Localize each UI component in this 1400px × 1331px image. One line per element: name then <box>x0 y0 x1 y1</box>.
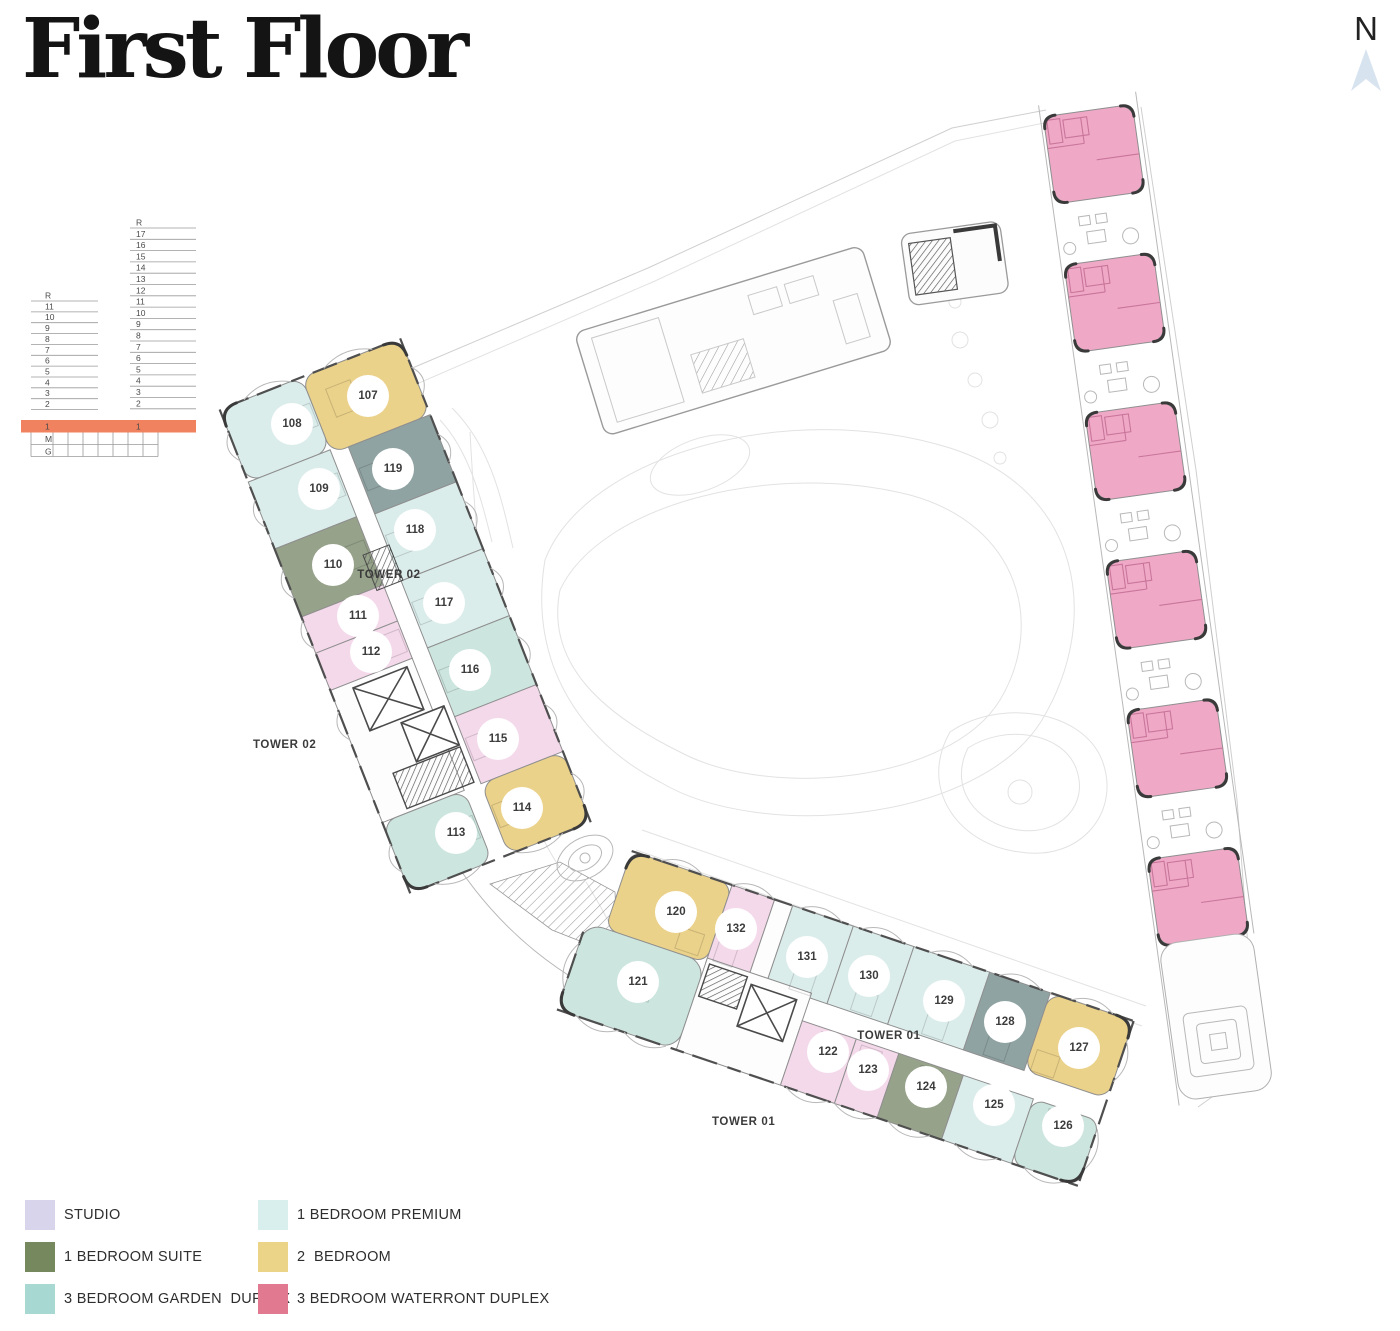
waterfront-unit <box>1127 698 1228 798</box>
unit-badge: 122 <box>807 1031 849 1073</box>
tower02-inner-label: TOWER 02 <box>357 569 420 581</box>
suite-swatch-icon <box>25 1242 55 1272</box>
floor-plan: 107 108 119 109 118 110 117 111 112 116 … <box>0 0 1400 1331</box>
legend-label: 1 BEDROOM SUITE <box>64 1249 202 1265</box>
waterfront-unit <box>1043 104 1144 204</box>
svg-text:108: 108 <box>282 418 302 430</box>
svg-text:111: 111 <box>349 610 368 622</box>
svg-text:112: 112 <box>362 646 381 658</box>
svg-text:116: 116 <box>461 664 480 676</box>
svg-text:110: 110 <box>324 559 343 571</box>
unit-badge: 116 <box>449 649 491 691</box>
legend-label: 1 BEDROOM PREMIUM <box>297 1207 462 1223</box>
unit-badge: 127 <box>1058 1027 1100 1069</box>
unit-badge: 113 <box>435 812 477 854</box>
svg-text:109: 109 <box>309 483 328 495</box>
svg-text:127: 127 <box>1069 1042 1088 1054</box>
unit-badge: 130 <box>848 955 890 997</box>
svg-text:123: 123 <box>858 1064 877 1076</box>
legend: STUDIO 1 BEDROOM SUITE 3 BEDROOM GARDEN … <box>0 1188 760 1328</box>
unit-badge: 112 <box>350 631 392 673</box>
legend-label: 3 BEDROOM WATERRONT DUPLEX <box>297 1291 549 1307</box>
unit-badge: 121 <box>617 961 659 1003</box>
svg-text:114: 114 <box>513 802 532 814</box>
waterfront-duplex-swatch-icon <box>258 1284 288 1314</box>
amenity-annex <box>900 221 1009 306</box>
tower02-outer-label: TOWER 02 <box>253 739 316 751</box>
unit-badge: 126 <box>1042 1105 1084 1147</box>
svg-text:107: 107 <box>358 390 377 402</box>
unit-badge: 128 <box>984 1001 1026 1043</box>
unit-badge: 123 <box>847 1049 889 1091</box>
svg-text:122: 122 <box>818 1046 837 1058</box>
legend-item-2-bedroom: 2 BEDROOM <box>258 1242 391 1272</box>
premium-swatch-icon <box>258 1200 288 1230</box>
legend-item-3br-garden-duplex: 3 BEDROOM GARDEN DUPLEX <box>25 1284 290 1314</box>
studio-swatch-icon <box>25 1200 55 1230</box>
unit-badge: 111 <box>337 595 379 637</box>
legend-label: STUDIO <box>64 1207 121 1223</box>
unit-badge: 129 <box>923 980 965 1022</box>
tower01-inner-label: TOWER 01 <box>857 1030 920 1042</box>
waterfront-unit <box>1148 847 1249 947</box>
svg-text:132: 132 <box>726 923 745 935</box>
svg-text:126: 126 <box>1053 1120 1072 1132</box>
svg-text:120: 120 <box>666 906 685 918</box>
unit-badge: 131 <box>786 936 828 978</box>
unit-badge: 114 <box>501 787 543 829</box>
legend-label: 2 BEDROOM <box>297 1249 391 1265</box>
legend-item-1br-premium: 1 BEDROOM PREMIUM <box>258 1200 462 1230</box>
unit-badge: 125 <box>973 1084 1015 1126</box>
strip-end-terrace <box>1159 932 1274 1102</box>
svg-text:118: 118 <box>406 524 425 536</box>
unit-badge: 107 <box>347 375 389 417</box>
unit-badge: 120 <box>655 891 697 933</box>
svg-text:124: 124 <box>916 1081 936 1093</box>
two-bedroom-swatch-icon <box>258 1242 288 1272</box>
waterfront-unit <box>1085 401 1186 501</box>
legend-item-1br-suite: 1 BEDROOM SUITE <box>25 1242 202 1272</box>
svg-text:131: 131 <box>797 951 817 963</box>
unit-badge: 108 <box>271 403 313 445</box>
legend-label: 3 BEDROOM GARDEN DUPLEX <box>64 1291 290 1307</box>
unit-badge: 117 <box>423 582 465 624</box>
tower01-outer-label: TOWER 01 <box>712 1116 775 1128</box>
svg-text:119: 119 <box>384 463 403 475</box>
svg-text:128: 128 <box>995 1016 1015 1028</box>
svg-text:117: 117 <box>435 597 454 609</box>
svg-text:113: 113 <box>447 827 466 839</box>
svg-text:129: 129 <box>934 995 953 1007</box>
amenity-building <box>574 245 892 436</box>
unit-badge: 132 <box>715 908 757 950</box>
unit-badge: 118 <box>394 509 436 551</box>
unit-badge: 119 <box>372 448 414 490</box>
unit-badge: 109 <box>298 468 340 510</box>
svg-text:130: 130 <box>859 970 878 982</box>
waterfront-unit <box>1064 253 1165 353</box>
svg-text:125: 125 <box>984 1099 1004 1111</box>
unit-badge: 124 <box>905 1066 947 1108</box>
legend-item-studio: STUDIO <box>25 1200 121 1230</box>
svg-text:121: 121 <box>628 976 648 988</box>
garden-duplex-swatch-icon <box>25 1284 55 1314</box>
unit-badge: 115 <box>477 718 519 760</box>
waterfront-unit <box>1106 550 1207 650</box>
svg-text:115: 115 <box>489 733 508 745</box>
legend-item-3br-waterfront-duplex: 3 BEDROOM WATERRONT DUPLEX <box>258 1284 549 1314</box>
unit-badge: 110 <box>312 544 354 586</box>
